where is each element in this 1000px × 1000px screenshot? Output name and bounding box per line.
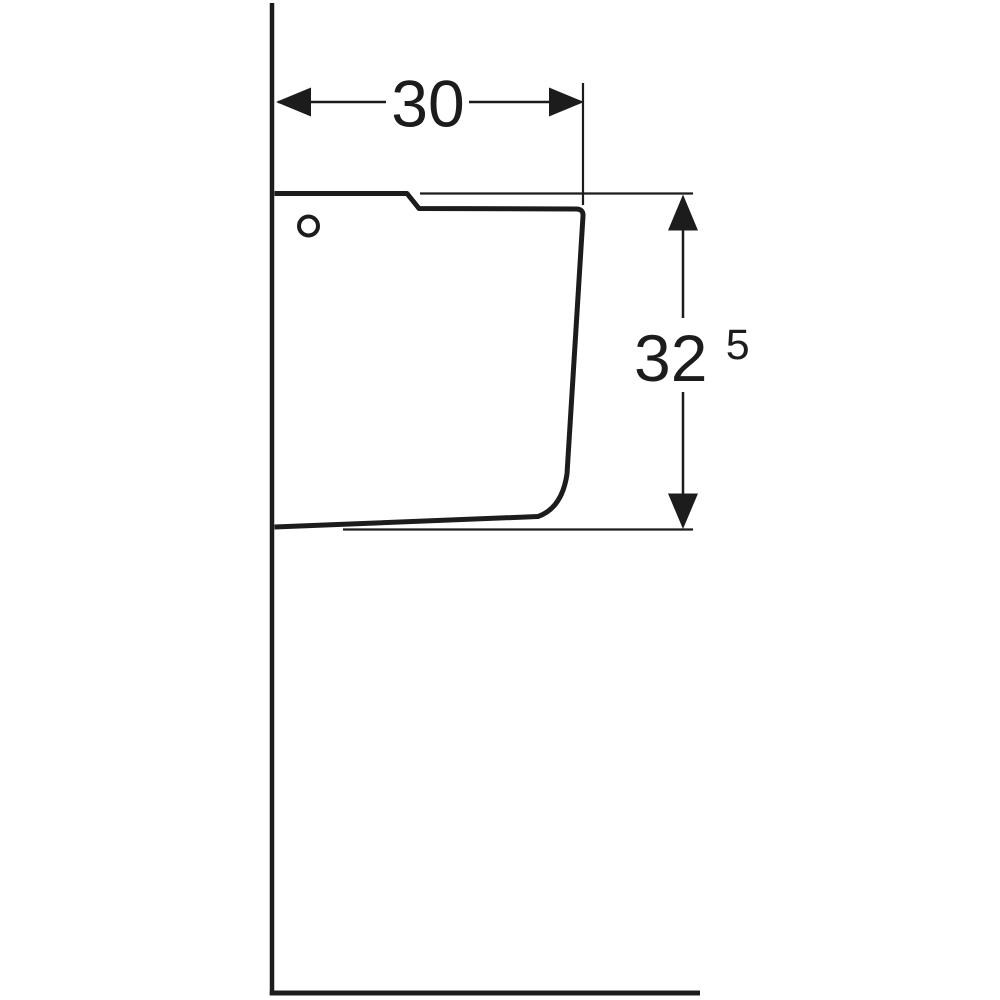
width-arrow-left-icon	[276, 88, 311, 117]
height-arrow-down-icon	[668, 494, 698, 530]
fixing-hole-icon	[299, 217, 318, 236]
height-dimension-main: 32	[634, 321, 707, 395]
diagram-canvas: 30 32 5	[0, 0, 1000, 1000]
height-dimension-value: 32 5	[634, 321, 750, 395]
height-arrow-up-icon	[668, 195, 698, 231]
width-arrow-right-icon	[549, 88, 584, 117]
fixture-profile-outline	[275, 194, 584, 528]
height-dimension-superscript: 5	[726, 321, 750, 369]
width-dimension-value: 30	[391, 67, 464, 141]
technical-drawing: 30 32 5	[0, 0, 1000, 1000]
